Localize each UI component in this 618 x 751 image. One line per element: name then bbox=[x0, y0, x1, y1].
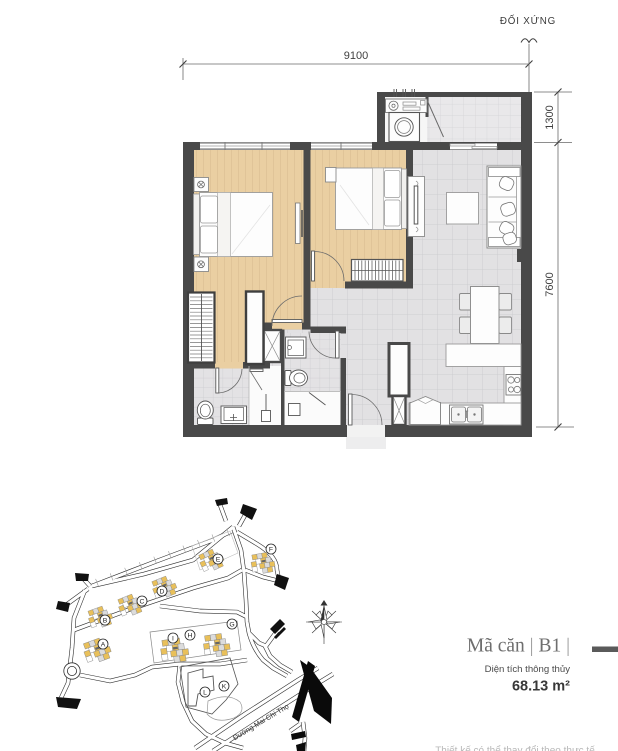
svg-text:B: B bbox=[103, 617, 108, 624]
svg-text:Thiết kế có thể thay đổi theo: Thiết kế có thể thay đổi theo thực tế bbox=[435, 745, 595, 751]
svg-text:68.13 m²: 68.13 m² bbox=[512, 679, 570, 695]
svg-text:K: K bbox=[222, 683, 227, 690]
svg-text:G: G bbox=[229, 621, 234, 628]
svg-text:9100: 9100 bbox=[344, 50, 368, 62]
svg-text:A: A bbox=[101, 641, 106, 648]
svg-text:Diện tích thông thủy: Diện tích thông thủy bbox=[485, 664, 571, 675]
svg-text:1300: 1300 bbox=[544, 105, 556, 129]
svg-text:F: F bbox=[269, 546, 273, 553]
svg-text:E: E bbox=[216, 556, 221, 563]
svg-text:ĐỐI XỨNG: ĐỐI XỨNG bbox=[500, 15, 556, 27]
svg-text:C: C bbox=[140, 598, 145, 605]
svg-text:D: D bbox=[160, 588, 165, 595]
svg-text:L: L bbox=[203, 689, 207, 696]
svg-text:Mã căn | B1 |: Mã căn | B1 | bbox=[467, 636, 570, 657]
svg-text:7600: 7600 bbox=[544, 272, 556, 296]
svg-text:H: H bbox=[188, 632, 193, 639]
svg-text:I: I bbox=[172, 635, 174, 642]
